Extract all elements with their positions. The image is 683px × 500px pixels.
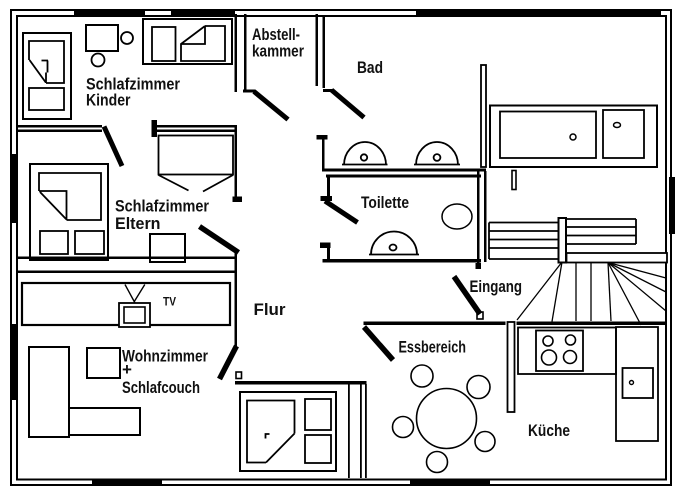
svg-text:Schlafzimmer: Schlafzimmer <box>115 197 209 216</box>
svg-text:Küche: Küche <box>528 421 570 440</box>
svg-text:Flur: Flur <box>254 300 286 319</box>
svg-text:+: + <box>122 360 132 379</box>
svg-text:Eingang: Eingang <box>470 277 523 296</box>
svg-text:Kinder: Kinder <box>86 91 131 110</box>
svg-text:Schlafcouch: Schlafcouch <box>122 378 200 397</box>
svg-text:Wohnzimmer: Wohnzimmer <box>122 347 208 366</box>
svg-text:Eltern: Eltern <box>115 214 161 233</box>
svg-text:Toilette: Toilette <box>361 193 409 212</box>
svg-text:TV: TV <box>163 295 176 309</box>
svg-text:Essbereich: Essbereich <box>399 338 467 357</box>
svg-text:Bad: Bad <box>357 58 383 77</box>
svg-text:kammer: kammer <box>252 42 304 61</box>
